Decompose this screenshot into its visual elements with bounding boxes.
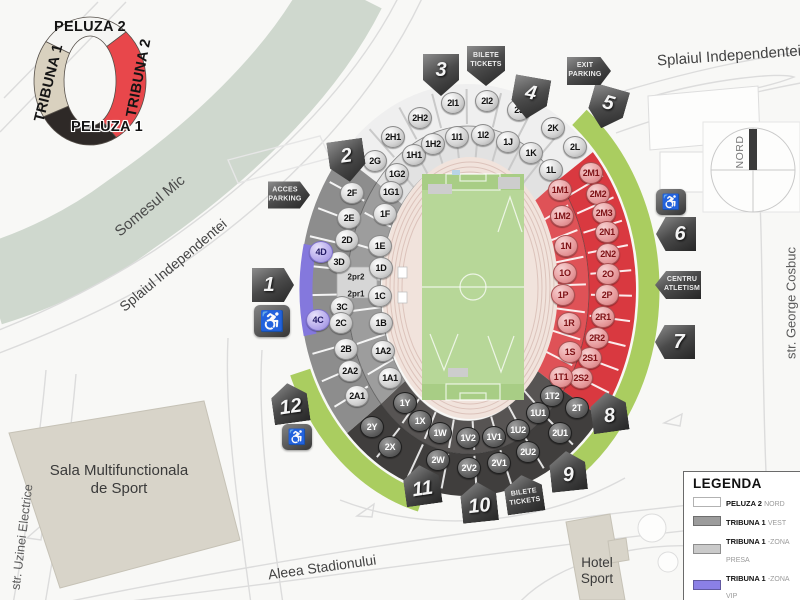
legend-item-3: TRIBUNA 1 -ZONA VIP bbox=[693, 568, 796, 600]
sector-2n2[interactable]: 2N2 bbox=[596, 243, 620, 265]
legend-item-0: PELUZA 2 NORD bbox=[693, 493, 796, 511]
sector-2k[interactable]: 2K bbox=[541, 117, 565, 139]
sector-1a1[interactable]: 1A1 bbox=[378, 367, 402, 389]
street-label-aleea-stadionului: Aleea Stadionului bbox=[267, 551, 377, 582]
bilete-tickets-north-label: TICKETS bbox=[470, 61, 501, 70]
legend-swatch bbox=[693, 516, 721, 526]
legend-item-2: TRIBUNA 1 -ZONA PRESA bbox=[693, 531, 796, 566]
sector-4d[interactable]: 4D bbox=[309, 241, 333, 263]
sector-2o[interactable]: 2O bbox=[596, 263, 620, 285]
sector-1m1[interactable]: 1M1 bbox=[548, 179, 572, 201]
sector-2l[interactable]: 2L bbox=[563, 136, 587, 158]
exit-parking-badge[interactable]: EXITPARKING bbox=[567, 57, 611, 85]
overview-label-peluza2: PELUZA 2 bbox=[54, 19, 126, 35]
entrance-1-badge[interactable]: 1 bbox=[252, 268, 294, 302]
sector-1n[interactable]: 1N bbox=[554, 235, 578, 257]
sector-1c[interactable]: 1C bbox=[368, 285, 392, 307]
sector-1v1[interactable]: 1V1 bbox=[482, 426, 506, 448]
wheelchair-entrance-1-icon: ♿ bbox=[254, 305, 290, 337]
acces-parking-label: PARKING bbox=[268, 195, 301, 204]
sector-1a2[interactable]: 1A2 bbox=[371, 340, 395, 362]
sector-1f[interactable]: 1F bbox=[373, 203, 397, 225]
overview-label-tribuna1: TRIBUNA 1 bbox=[32, 42, 67, 123]
legend-item-text: PELUZA 2 NORD bbox=[726, 493, 785, 511]
sector-1o[interactable]: 1O bbox=[553, 262, 577, 284]
sector-2w[interactable]: 2W bbox=[426, 449, 450, 471]
sector-2v2[interactable]: 2V2 bbox=[457, 457, 481, 479]
sector-1j[interactable]: 1J bbox=[496, 131, 520, 153]
sector-2u1[interactable]: 2U1 bbox=[548, 422, 572, 444]
overview-label-peluza1: PELUZA 1 bbox=[71, 119, 143, 135]
legend-panel: LEGENDA PELUZA 2 NORDTRIBUNA 1 VESTTRIBU… bbox=[683, 471, 800, 600]
entrance-12-badge[interactable]: 12 bbox=[269, 381, 310, 426]
street-label-george-cosbuc: str. George Cosbuc bbox=[784, 247, 799, 359]
sector-1v2[interactable]: 1V2 bbox=[456, 427, 480, 449]
sector-1w[interactable]: 1W bbox=[428, 422, 452, 444]
street-label-uzinei-electrice: str. Uzinei Electrice bbox=[9, 483, 36, 590]
map-overlay: PELUZA 2 TRIBUNA 1 TRIBUNA 2 PELUZA 1 So… bbox=[0, 0, 800, 600]
sector-1u2[interactable]: 1U2 bbox=[506, 419, 530, 441]
centru-atletism-badge[interactable]: CENTRUATLETISM bbox=[655, 271, 701, 299]
legend-item-text: TRIBUNA 1 -ZONA PRESA bbox=[726, 531, 796, 566]
building-label-sala: Sala Multifunctionala de Sport bbox=[29, 462, 209, 498]
centru-atletism-label: ATLETISM bbox=[664, 285, 700, 294]
legend-bold-label: TRIBUNA 1 bbox=[726, 518, 768, 527]
overview-label-tribuna2: TRIBUNA 2 bbox=[124, 37, 155, 118]
sector-2f[interactable]: 2F bbox=[340, 182, 364, 204]
legend-bold-label: TRIBUNA 1 bbox=[726, 574, 768, 583]
street-label-splaiul-independentei-north: Splaiul Independentei bbox=[656, 42, 800, 69]
sector-2r1[interactable]: 2R1 bbox=[591, 306, 615, 328]
entrance-10-badge[interactable]: 10 bbox=[459, 480, 499, 524]
legend-bold-label: TRIBUNA 1 bbox=[726, 537, 768, 546]
entrance-9-badge[interactable]: 9 bbox=[548, 449, 588, 493]
exit-parking-label: EXIT bbox=[577, 62, 593, 71]
sector-1i1[interactable]: 1I1 bbox=[445, 126, 469, 148]
legend-light-label: NORD bbox=[764, 501, 785, 508]
sector-1d[interactable]: 1D bbox=[369, 257, 393, 279]
legend-item-text: TRIBUNA 1 VEST bbox=[726, 512, 786, 530]
entrance-2-badge[interactable]: 2 bbox=[326, 138, 367, 185]
sector-2y[interactable]: 2Y bbox=[360, 416, 384, 438]
sector-1l[interactable]: 1L bbox=[539, 159, 563, 181]
sector-2u2[interactable]: 2U2 bbox=[516, 441, 540, 463]
sector-1g1[interactable]: 1G1 bbox=[379, 181, 403, 203]
sector-2r2[interactable]: 2R2 bbox=[585, 327, 609, 349]
sector-2a2[interactable]: 2A2 bbox=[338, 360, 362, 382]
sector-1m2[interactable]: 1M2 bbox=[550, 205, 574, 227]
street-label-somesul-mic: Somesul Mic bbox=[112, 172, 189, 240]
sector-1k[interactable]: 1K bbox=[519, 142, 543, 164]
legend-bold-label: PELUZA 2 bbox=[726, 499, 764, 508]
stadium-map: NORD bbox=[0, 0, 800, 600]
building-label-hotel: Hotel Sport bbox=[581, 555, 613, 587]
sector-1h2[interactable]: 1H2 bbox=[421, 133, 445, 155]
legend-item-1: TRIBUNA 1 VEST bbox=[693, 512, 796, 530]
wheelchair-entrance-6-icon: ♿ bbox=[656, 189, 686, 215]
legend-item-text: TRIBUNA 1 -ZONA VIP bbox=[726, 568, 796, 600]
sector-2i2[interactable]: 2I2 bbox=[475, 90, 499, 112]
exit-parking-label: PARKING bbox=[568, 71, 601, 80]
sector-2h2[interactable]: 2H2 bbox=[408, 107, 432, 129]
sector-1b[interactable]: 1B bbox=[369, 312, 393, 334]
sector-2n1[interactable]: 2N1 bbox=[595, 221, 619, 243]
sala-label-line1: Sala Multifunctionala bbox=[29, 462, 209, 480]
sector-1i2[interactable]: 1I2 bbox=[471, 124, 495, 146]
hotel-label-line1: Hotel bbox=[581, 555, 613, 571]
sector-2pr2[interactable]: 2pr2 bbox=[348, 273, 365, 282]
entrance-3-badge[interactable]: 3 bbox=[423, 54, 459, 96]
bilete-tickets-north-label: BILETE bbox=[473, 52, 499, 61]
bilete-tickets-north-badge[interactable]: BILETETICKETS bbox=[467, 46, 505, 86]
legend-swatch bbox=[693, 580, 721, 590]
sector-1p[interactable]: 1P bbox=[551, 284, 575, 306]
sector-1r[interactable]: 1R bbox=[557, 312, 581, 334]
sector-2t[interactable]: 2T bbox=[565, 397, 589, 419]
acces-parking-badge[interactable]: ACCESPARKING bbox=[268, 182, 310, 209]
sector-2i1[interactable]: 2I1 bbox=[441, 92, 465, 114]
sector-2b[interactable]: 2B bbox=[334, 338, 358, 360]
sector-1x[interactable]: 1X bbox=[408, 410, 432, 432]
acces-parking-label: ACCES bbox=[272, 186, 298, 195]
entrance-8-badge[interactable]: 8 bbox=[588, 390, 629, 435]
sector-2c[interactable]: 2C bbox=[329, 312, 353, 334]
sector-2g[interactable]: 2G bbox=[363, 150, 387, 172]
legend-title: LEGENDA bbox=[693, 476, 796, 491]
sector-1e[interactable]: 1E bbox=[368, 235, 392, 257]
sector-4c[interactable]: 4C bbox=[306, 309, 330, 331]
sector-2pr1[interactable]: 2pr1 bbox=[348, 290, 365, 299]
sector-1s[interactable]: 1S bbox=[558, 341, 582, 363]
legend-swatch bbox=[693, 497, 721, 507]
sector-2m1[interactable]: 2M1 bbox=[579, 162, 603, 184]
sector-2h1[interactable]: 2H1 bbox=[381, 126, 405, 148]
sector-2x[interactable]: 2X bbox=[378, 436, 402, 458]
entrance-6-badge[interactable]: 6 bbox=[656, 217, 696, 251]
legend-swatch bbox=[693, 544, 721, 554]
centru-atletism-label: CENTRU bbox=[667, 276, 697, 285]
hotel-label-line2: Sport bbox=[581, 571, 613, 587]
sala-label-line2: de Sport bbox=[29, 480, 209, 498]
entrance-7-badge[interactable]: 7 bbox=[655, 325, 695, 359]
sector-2p[interactable]: 2P bbox=[595, 284, 619, 306]
sector-1u1[interactable]: 1U1 bbox=[526, 402, 550, 424]
sector-2e[interactable]: 2E bbox=[337, 207, 361, 229]
sector-2d[interactable]: 2D bbox=[335, 229, 359, 251]
sector-2a1[interactable]: 2A1 bbox=[345, 385, 369, 407]
legend-items: PELUZA 2 NORDTRIBUNA 1 VESTTRIBUNA 1 -ZO… bbox=[693, 493, 796, 600]
bilete-tickets-south-badge[interactable]: BILETETICKETS bbox=[503, 473, 546, 516]
entrance-5-badge[interactable]: 5 bbox=[584, 83, 630, 133]
sector-1y[interactable]: 1Y bbox=[393, 392, 417, 414]
legend-light-label: VEST bbox=[768, 520, 786, 527]
wheelchair-entrance-12-icon: ♿ bbox=[282, 424, 312, 450]
sector-2v1[interactable]: 2V1 bbox=[487, 452, 511, 474]
